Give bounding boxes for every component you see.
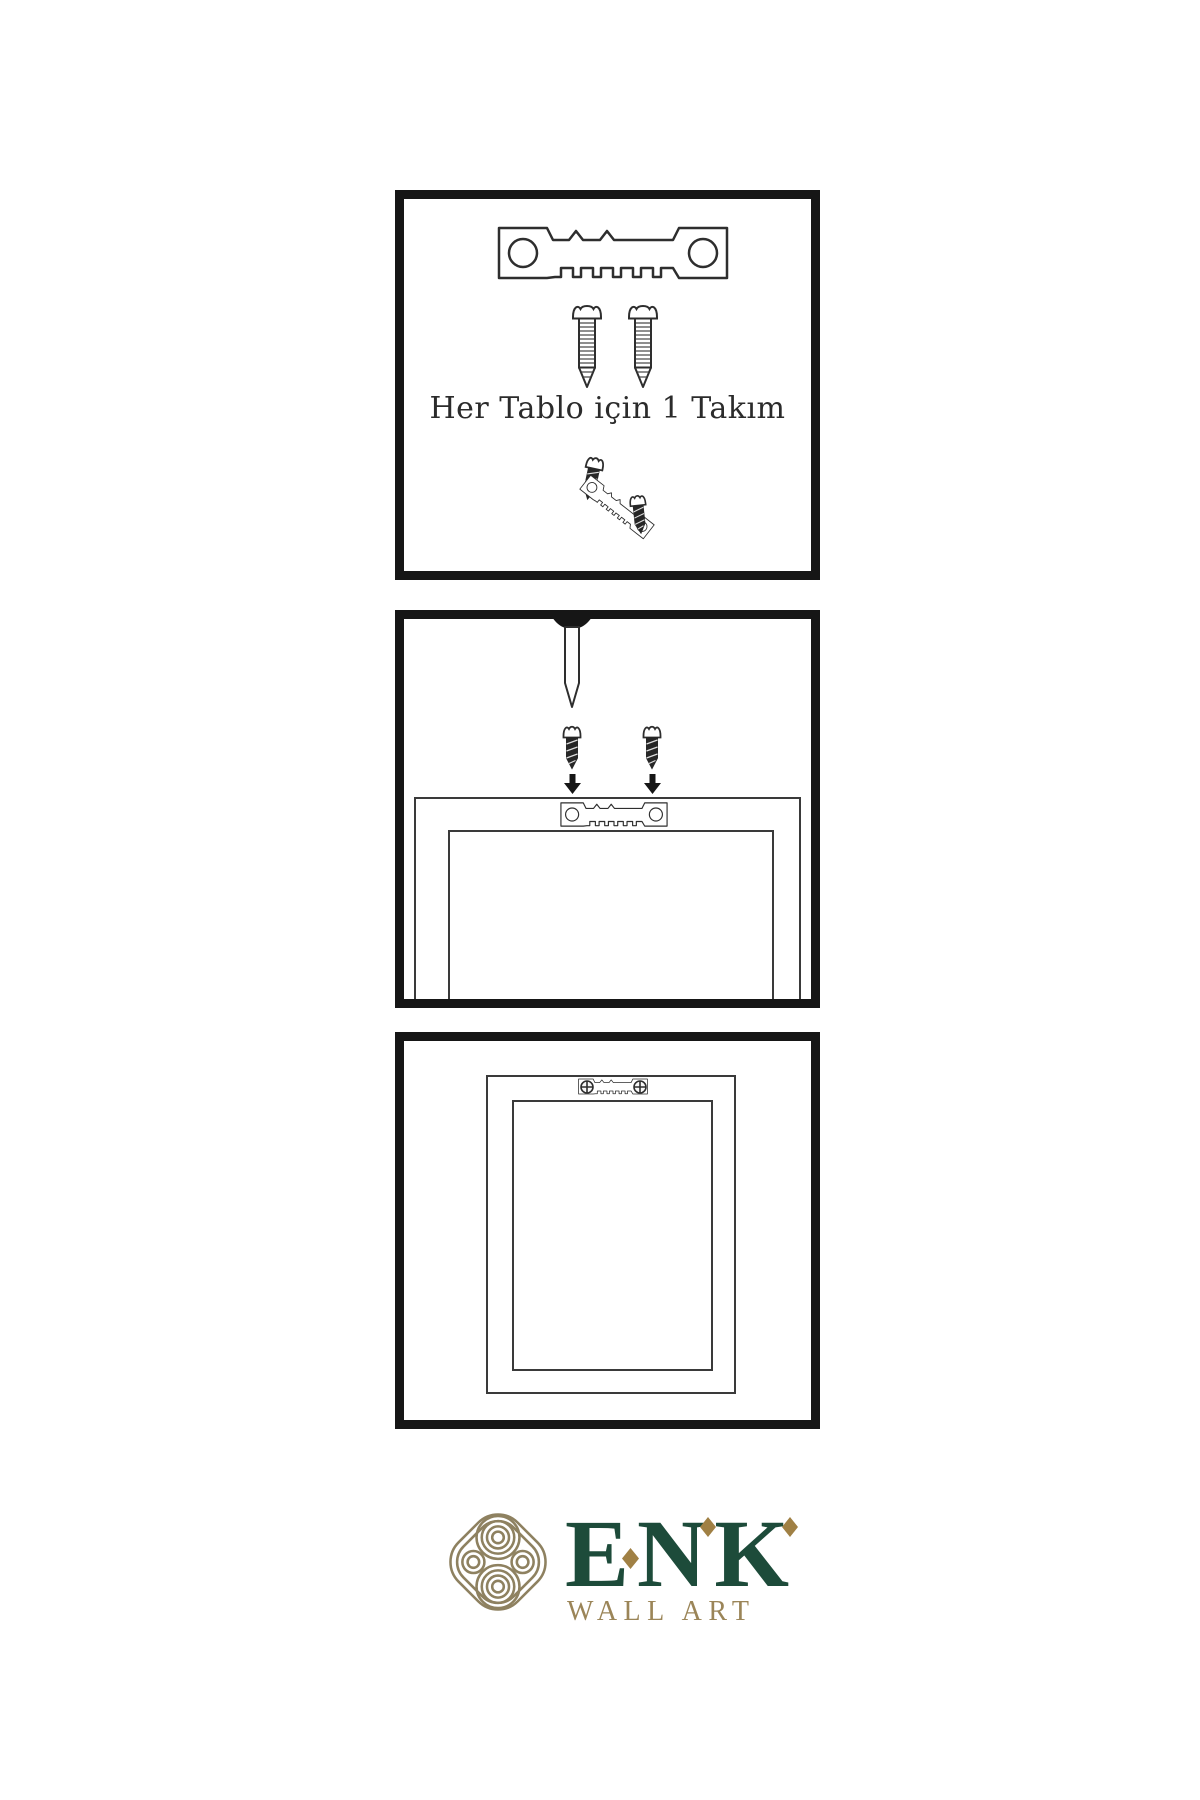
dark-screw-icon <box>628 492 650 536</box>
step3-hung-panel <box>395 1032 820 1429</box>
sawtooth-hanger-icon <box>560 801 668 828</box>
dark-screw-icon <box>642 724 662 770</box>
down-arrow-icon <box>644 774 661 794</box>
instruction-sheet: Her Tablo için 1 Takım <box>0 0 1200 1800</box>
brand-name: ENK <box>565 1506 797 1602</box>
step1-kit-panel: Her Tablo için 1 Takım <box>395 190 820 580</box>
interlocked-knot-logo-icon <box>440 1500 556 1624</box>
screw-icon <box>571 303 603 389</box>
angled-hanger-with-screws-icon <box>582 455 672 550</box>
phillips-screw-head-icon <box>580 1080 594 1094</box>
brand-tagline: WALL ART <box>567 1598 756 1626</box>
frame-back-inner-edge <box>448 830 774 999</box>
step1-caption: Her Tablo için 1 Takım <box>404 391 811 426</box>
step2-install-panel <box>395 610 820 1008</box>
down-arrow-icon <box>564 774 581 794</box>
phillips-screw-head-icon <box>633 1080 647 1094</box>
frame-back-inner-edge <box>512 1100 713 1371</box>
dark-screw-icon <box>562 724 582 770</box>
sawtooth-hanger-icon <box>497 226 729 280</box>
screw-icon <box>627 303 659 389</box>
nail-icon <box>547 611 597 711</box>
